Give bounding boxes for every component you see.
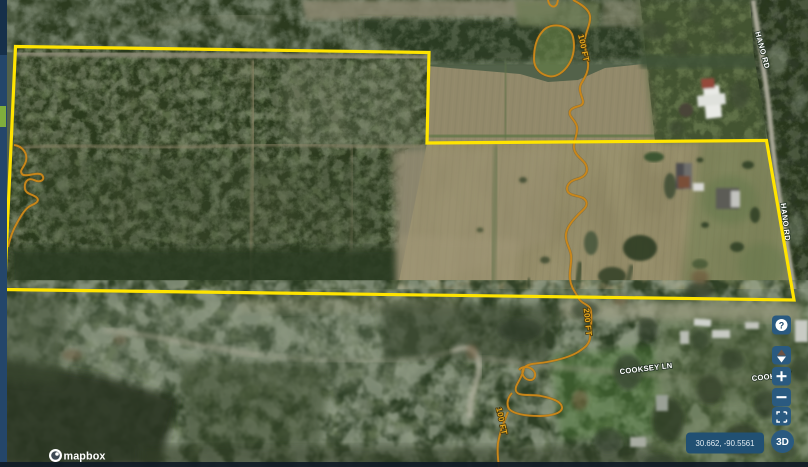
svg-text:mapbox: mapbox — [64, 451, 106, 463]
svg-text:30.662, -90.5561: 30.662, -90.5561 — [696, 439, 755, 448]
svg-text:?: ? — [779, 321, 785, 331]
svg-text:3D: 3D — [776, 437, 789, 448]
